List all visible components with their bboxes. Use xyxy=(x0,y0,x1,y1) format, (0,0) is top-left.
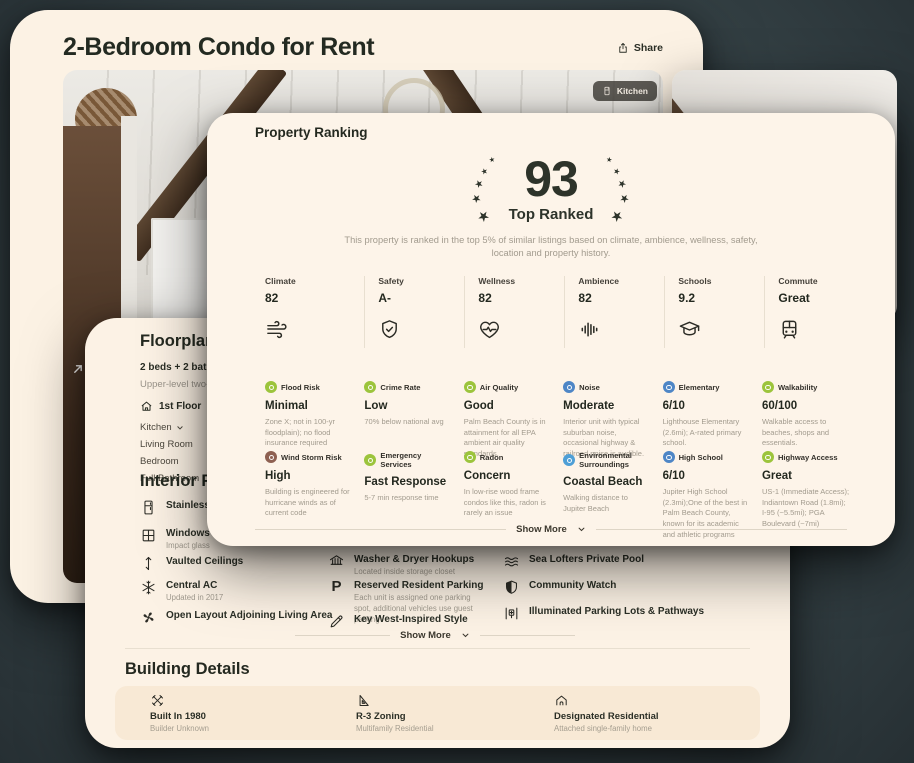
building-item-residential: Designated Residential Attached single-f… xyxy=(554,693,659,733)
category-schools: Schools 9.2 xyxy=(664,276,764,348)
category-ambience: Ambience 82 xyxy=(564,276,664,348)
heart-pulse-icon xyxy=(478,318,564,346)
building-details-heading: Building Details xyxy=(125,660,250,679)
interior-show-more-button[interactable]: Show More xyxy=(295,630,575,641)
category-safety: Safety A- xyxy=(364,276,464,348)
floor-label: 1st Floor xyxy=(159,401,201,412)
ranking-categories: Climate 82 Safety A- Wellness 82 Ambienc… xyxy=(265,276,864,348)
feature-vaulted-ceilings: Vaulted Ceilings xyxy=(140,556,305,572)
photo-tag-kitchen[interactable]: Kitchen xyxy=(593,81,657,101)
chevron-down-icon xyxy=(176,424,184,432)
feature-key-west-style: Key West-Inspired Style xyxy=(328,614,498,630)
feature-illuminated-parking: Illuminated Parking Lots & Pathways xyxy=(503,606,733,622)
train-icon xyxy=(778,318,864,346)
divider xyxy=(480,635,575,636)
share-icon xyxy=(617,42,629,54)
drying-rack-icon xyxy=(328,553,345,570)
street-lamp-icon xyxy=(503,605,520,622)
detail-air-quality: Air Quality Good Palm Beach County is in… xyxy=(464,381,563,460)
wind-icon xyxy=(265,318,364,346)
detail-flood-risk: Flood Risk Minimal Zone X; not in 100-yr… xyxy=(265,381,364,460)
elementary-icon xyxy=(663,381,675,393)
flood-risk-icon xyxy=(265,381,277,393)
property-ranking-card: Property Ranking ★ ★ ★ ★ ★ ★ ★ ★ ★ ★ 93 … xyxy=(207,113,895,546)
snowflake-icon xyxy=(140,579,157,596)
ranking-show-more-button[interactable]: Show More xyxy=(255,524,847,535)
set-square-icon xyxy=(356,693,371,708)
feature-central-ac: Central ACUpdated in 2017 xyxy=(140,580,305,602)
fridge-icon xyxy=(140,499,157,516)
house-icon xyxy=(140,400,153,413)
detail-walkability: Walkability 60/100 Walkable access to be… xyxy=(762,381,861,460)
window-icon xyxy=(140,527,157,544)
chevron-down-icon xyxy=(461,631,470,640)
wind-storm-icon xyxy=(265,451,277,463)
feature-washer-dryer: Washer & Dryer HookupsLocated inside sto… xyxy=(328,554,498,576)
crossed-tools-icon xyxy=(150,693,165,708)
feature-private-pool: Sea Lofters Private Pool xyxy=(503,554,723,570)
ranking-details-row-1: Flood Risk Minimal Zone X; not in 100-yr… xyxy=(265,381,861,460)
shield-half-icon xyxy=(503,579,520,596)
air-quality-icon xyxy=(464,381,476,393)
divider xyxy=(255,529,506,530)
detail-noise: Noise Moderate Interior unit with typica… xyxy=(563,381,662,460)
photo-tag-label: Kitchen xyxy=(617,86,648,96)
divider xyxy=(125,648,750,649)
crime-rate-icon xyxy=(364,381,376,393)
ranking-description: This property is ranked in the top 5% of… xyxy=(335,234,767,261)
shield-check-icon xyxy=(378,318,464,346)
high-school-icon xyxy=(663,451,675,463)
expand-photo-icon[interactable] xyxy=(71,362,85,376)
property-ranking-heading: Property Ranking xyxy=(255,125,368,140)
fan-icon xyxy=(140,609,157,626)
laurel-star: ★ xyxy=(488,157,495,165)
waveform-icon xyxy=(578,318,664,346)
ranking-score: 93 xyxy=(207,153,895,205)
vaulted-ceiling-icon xyxy=(140,555,157,572)
share-label: Share xyxy=(634,42,663,54)
divider xyxy=(596,529,847,530)
ranking-score-block: ★ ★ ★ ★ ★ ★ ★ ★ ★ ★ 93 Top Ranked This p… xyxy=(207,153,895,261)
show-more-label: Show More xyxy=(400,630,451,641)
graduation-cap-icon xyxy=(678,318,764,346)
detail-crime-rate: Crime Rate Low 70% below national avg xyxy=(364,381,463,460)
waves-icon xyxy=(503,553,520,570)
environment-icon xyxy=(563,454,575,466)
noise-icon xyxy=(563,381,575,393)
building-item-built: Built In 1980 Builder Unknown xyxy=(150,693,209,733)
detail-elementary: Elementary 6/10 Lighthouse Elementary (2… xyxy=(663,381,762,460)
radon-icon xyxy=(464,451,476,463)
house-icon xyxy=(554,693,569,708)
floorplan-heading: Floorplan xyxy=(140,332,215,351)
ranking-score-label: Top Ranked xyxy=(207,206,895,223)
room-bedroom: Bedroom xyxy=(140,456,179,467)
room-living-room: Living Room xyxy=(140,439,193,450)
category-wellness: Wellness 82 xyxy=(464,276,564,348)
building-item-zoning: R-3 Zoning Multifamily Residential xyxy=(356,693,434,733)
divider xyxy=(295,635,390,636)
laurel-star: ★ xyxy=(605,157,612,165)
building-details-panel: Built In 1980 Builder Unknown R-3 Zoning… xyxy=(115,686,760,740)
emergency-services-icon xyxy=(364,454,376,466)
show-more-label: Show More xyxy=(516,524,567,535)
category-climate: Climate 82 xyxy=(265,276,364,348)
highway-access-icon xyxy=(762,451,774,463)
fridge-icon xyxy=(602,86,612,96)
feature-community-watch: Community Watch xyxy=(503,580,723,596)
category-commute: Commute Great xyxy=(764,276,864,348)
pencil-icon xyxy=(328,613,345,630)
walkability-icon xyxy=(762,381,774,393)
page-title: 2-Bedroom Condo for Rent xyxy=(63,33,374,62)
parking-p-icon: P xyxy=(328,579,345,596)
chevron-down-icon xyxy=(577,525,586,534)
page: 2-Bedroom Condo for Rent Share Kitchen xyxy=(0,0,914,763)
share-button[interactable]: Share xyxy=(617,42,663,54)
room-kitchen[interactable]: Kitchen xyxy=(140,422,184,433)
